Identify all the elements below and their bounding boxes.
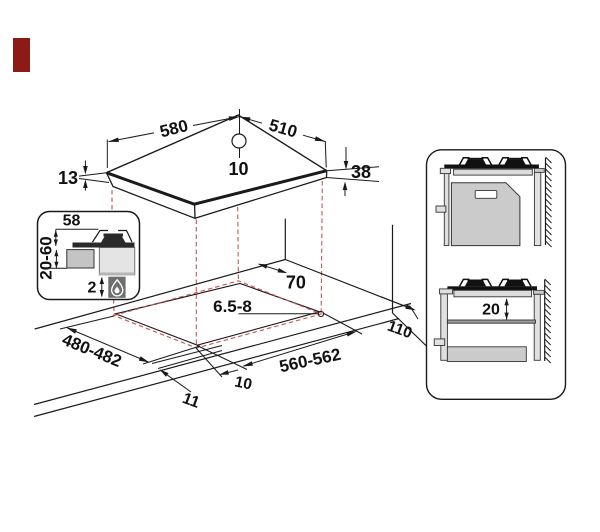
- svg-text:13: 13: [58, 168, 78, 188]
- svg-text:10: 10: [228, 159, 248, 179]
- svg-text:58: 58: [63, 213, 81, 230]
- svg-text:38: 38: [351, 162, 371, 182]
- svg-text:11: 11: [180, 390, 202, 412]
- svg-text:6.5-8: 6.5-8: [213, 297, 252, 316]
- svg-text:560-562: 560-562: [278, 345, 343, 377]
- svg-text:70: 70: [286, 272, 306, 292]
- svg-text:2: 2: [88, 280, 97, 297]
- svg-text:110: 110: [385, 318, 414, 343]
- svg-text:480-482: 480-482: [59, 330, 124, 371]
- svg-text:10: 10: [233, 373, 253, 393]
- svg-text:510: 510: [267, 115, 300, 141]
- svg-text:20: 20: [482, 302, 500, 319]
- svg-text:20-60: 20-60: [37, 236, 56, 279]
